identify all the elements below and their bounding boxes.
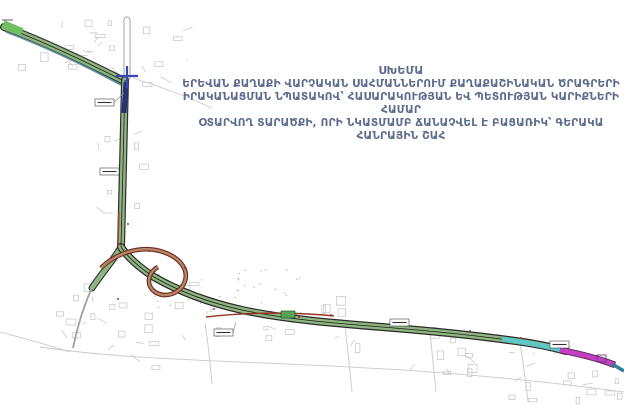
lot-line [526, 363, 536, 367]
terrain-dot [259, 283, 260, 284]
terrain-dot [234, 297, 235, 298]
background-street [430, 332, 436, 392]
lot-line [98, 42, 101, 46]
building-outline [450, 338, 455, 343]
lot-line [134, 131, 141, 134]
building-outline [173, 37, 182, 41]
terrain-dot [200, 303, 201, 304]
lot-line [183, 27, 193, 31]
building-outline [145, 325, 152, 333]
terrain-dot [284, 293, 285, 294]
magenta-section [560, 350, 615, 365]
terrain-dot [251, 305, 252, 306]
survey-point [117, 298, 119, 300]
building-outline [19, 64, 26, 70]
building-outline [110, 46, 115, 51]
building-outline [119, 331, 125, 337]
survey-point [127, 223, 129, 225]
survey-point [213, 308, 215, 310]
scheme-map [0, 0, 624, 407]
lot-line [62, 330, 68, 338]
lot-line [186, 60, 188, 61]
building-outline [108, 191, 112, 194]
lot-line [98, 143, 100, 151]
title-line-3: ԻՐԱԿԱՆԱՑՄԱՆ ՆՊԱՏԱԿՈՎ՝ ՀԱՍԱՐԱԿՈՒԹՅԱՆ ԵՎ Պ… [178, 91, 624, 117]
building-outline [458, 348, 465, 355]
building-outline [119, 303, 127, 308]
red-edge-vertical [118, 212, 119, 246]
building-outline [593, 371, 598, 377]
interchange-left-branch [92, 247, 121, 288]
building-outline [587, 389, 596, 395]
terrain-dot [286, 295, 287, 296]
terrain-dot [260, 270, 261, 271]
building-outline [576, 397, 579, 403]
building-outline [41, 53, 48, 62]
lot-line [94, 38, 98, 43]
terrain-dot [170, 305, 171, 306]
title-block: ՍԽԵՄԱ ԵՐԵՎԱՆ ՔԱՂԱՔԻ ՎԱՐՉԱԿԱՆ ՍԱՀՄԱՆՆԵՐՈՒ… [178, 64, 624, 143]
building-outline [140, 164, 149, 169]
survey-point [298, 316, 300, 318]
building-outline [189, 282, 199, 285]
terrain-dot [155, 296, 156, 297]
navy-section [124, 82, 126, 113]
lot-line [335, 336, 339, 338]
building-outline [56, 312, 63, 316]
northwest-avenue [4, 27, 122, 80]
terrain-dot [238, 279, 239, 280]
lot-line [447, 369, 450, 375]
building-outline [529, 399, 537, 402]
building-outline [605, 391, 615, 395]
background-street [205, 323, 212, 384]
terrain-dot [219, 296, 220, 297]
terrain-dot [265, 269, 266, 270]
building-outline [568, 373, 574, 379]
bridge-structure [281, 311, 295, 318]
building-outline [468, 364, 477, 372]
building-outline [615, 379, 618, 384]
building-outline [152, 366, 160, 370]
building-outline [338, 309, 345, 317]
building-outline [91, 314, 95, 320]
terrain-dot [236, 290, 237, 291]
title-line-2: ԵՐԵՎԱՆ ՔԱՂԱՔԻ ՎԱՐՉԱԿԱՆ ՍԱՀՄԱՆՆԵՐՈՒՄ ՔԱՂԱ… [178, 78, 624, 91]
terrain-dot [210, 311, 211, 312]
terrain-dot [157, 301, 158, 302]
building-outline [135, 204, 140, 209]
terrain-dot [261, 302, 262, 303]
title-line-scheme: ՍԽԵՄԱ [178, 64, 624, 77]
nw-teal-edge [6, 32, 121, 85]
marker-leader [233, 322, 236, 333]
lot-line [62, 21, 63, 29]
lot-line [97, 207, 105, 214]
terrain-dot [158, 307, 159, 308]
building-outline [437, 351, 444, 359]
building-outline [465, 354, 472, 358]
building-outline [95, 34, 105, 37]
building-outline [355, 344, 360, 353]
building-outline [336, 297, 345, 306]
terrain-dot [244, 269, 245, 270]
terrain-dot [286, 269, 287, 270]
lot-line [509, 352, 515, 353]
lot-line [97, 318, 106, 323]
lot-line [533, 353, 535, 354]
terrain-dot [188, 299, 189, 300]
lot-line [269, 326, 277, 329]
building-outline [142, 83, 152, 87]
building-outline [509, 395, 515, 400]
building-outline [155, 62, 163, 67]
terrain-dot [238, 290, 239, 291]
building-outline [68, 64, 77, 69]
survey-point [330, 314, 332, 316]
terrain-dot [244, 285, 245, 286]
background-street [345, 325, 352, 392]
building-outline [285, 330, 294, 335]
building-outline [73, 295, 78, 301]
gray-tail-road [73, 288, 92, 348]
building-outline [175, 302, 183, 308]
terrain-dot [253, 287, 254, 288]
lot-line [142, 66, 146, 73]
mainline-highway-casing [121, 247, 566, 351]
lot-line [93, 297, 94, 302]
lot-line [82, 322, 86, 324]
survey-point [148, 250, 150, 252]
building-outline [145, 313, 152, 319]
lot-line [583, 383, 593, 384]
terrain-dot [238, 278, 239, 279]
terrain-dot [207, 311, 208, 312]
lot-line [107, 345, 113, 350]
survey-point [520, 337, 522, 339]
building-outline [105, 136, 110, 141]
building-outline [66, 319, 76, 325]
building-outline [108, 21, 111, 26]
building-outline [144, 27, 150, 34]
terrain-dot [296, 278, 297, 279]
background-street [520, 342, 528, 402]
lot-line [410, 364, 414, 371]
lot-line [350, 340, 355, 346]
lot-line [182, 335, 186, 340]
terrain-dot [299, 278, 300, 279]
building-outline [110, 304, 115, 309]
background-street [0, 332, 70, 352]
lot-line [136, 342, 144, 344]
survey-point [184, 267, 186, 269]
lot-line [161, 77, 172, 83]
terrain-dot [211, 309, 212, 310]
building-outline [150, 342, 159, 346]
title-line-4: ՕՏԱՐՎՈՂ ՏԱՐԱԾՔԻ, ՈՐԻ ՆԿԱՏՄԱՄԲ ՃԱՆԱՉՎԵԼ Է… [178, 117, 624, 143]
building-outline [135, 143, 139, 150]
survey-point [469, 330, 471, 332]
building-outline [266, 336, 272, 341]
building-outline [618, 393, 622, 399]
survey-point [584, 357, 586, 359]
background-street [40, 347, 624, 392]
building-outline [85, 20, 92, 27]
terrain-dot [239, 273, 240, 274]
building-outline [264, 326, 268, 330]
terrain-dot [201, 279, 202, 280]
terrain-dot [275, 289, 276, 290]
